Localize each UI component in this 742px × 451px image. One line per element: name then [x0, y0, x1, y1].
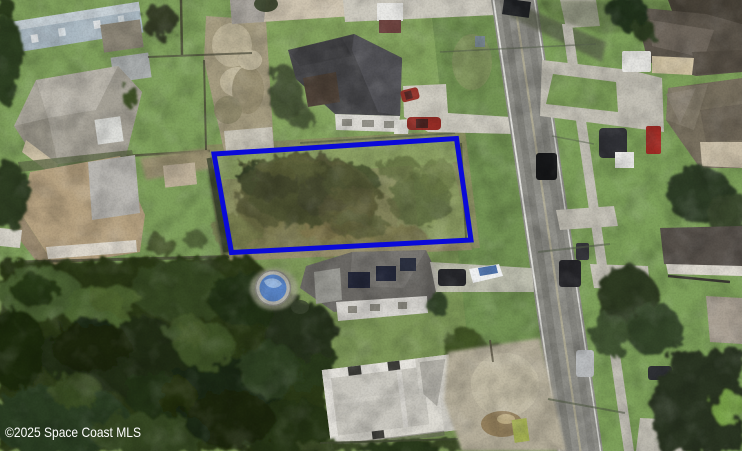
- svg-text:©2025 Space Coast MLS: ©2025 Space Coast MLS: [5, 424, 141, 440]
